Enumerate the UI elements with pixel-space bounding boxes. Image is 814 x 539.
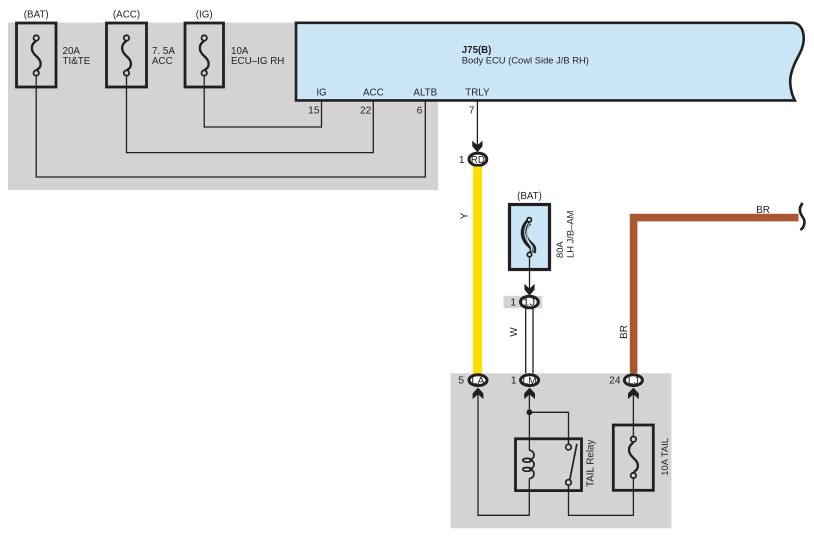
svg-text:22: 22 <box>360 106 372 117</box>
svg-text:6: 6 <box>417 106 423 117</box>
svg-text:RD: RD <box>471 155 485 166</box>
svg-text:1: 1 <box>511 376 517 387</box>
svg-text:LM: LM <box>523 376 537 387</box>
svg-text:(ACC): (ACC) <box>113 10 140 21</box>
svg-text:(BAT): (BAT) <box>517 191 542 202</box>
svg-text:BR: BR <box>756 205 770 216</box>
svg-text:80A: 80A <box>554 241 565 258</box>
svg-text:TRLY: TRLY <box>465 88 490 99</box>
svg-text:LH J/B–AM: LH J/B–AM <box>565 210 576 258</box>
svg-text:TI&TE: TI&TE <box>63 56 91 67</box>
svg-text:Body ECU (Cowl Side J/B RH): Body ECU (Cowl Side J/B RH) <box>462 55 589 66</box>
svg-text:1: 1 <box>459 155 465 166</box>
svg-text:(IG): (IG) <box>196 10 213 21</box>
svg-text:(BAT): (BAT) <box>24 10 49 21</box>
svg-text:Y: Y <box>460 212 471 219</box>
svg-text:LA: LA <box>471 376 485 387</box>
svg-text:ACC: ACC <box>152 56 173 67</box>
svg-text:5: 5 <box>458 376 464 387</box>
svg-text:24: 24 <box>609 376 621 387</box>
svg-text:TAIL Relay: TAIL Relay <box>586 440 597 487</box>
svg-text:1J: 1J <box>523 298 535 309</box>
svg-text:15: 15 <box>308 106 320 117</box>
svg-text:W: W <box>509 327 520 337</box>
svg-text:10A TAIL: 10A TAIL <box>659 438 670 476</box>
svg-text:ACC: ACC <box>363 88 384 99</box>
svg-text:ECU–IG RH: ECU–IG RH <box>231 56 284 67</box>
svg-text:1: 1 <box>510 297 516 308</box>
svg-text:ALTB: ALTB <box>413 88 437 99</box>
svg-text:7: 7 <box>469 106 475 117</box>
svg-text:LJ: LJ <box>628 376 639 387</box>
svg-text:BR: BR <box>619 325 630 339</box>
svg-text:IG: IG <box>316 88 326 99</box>
